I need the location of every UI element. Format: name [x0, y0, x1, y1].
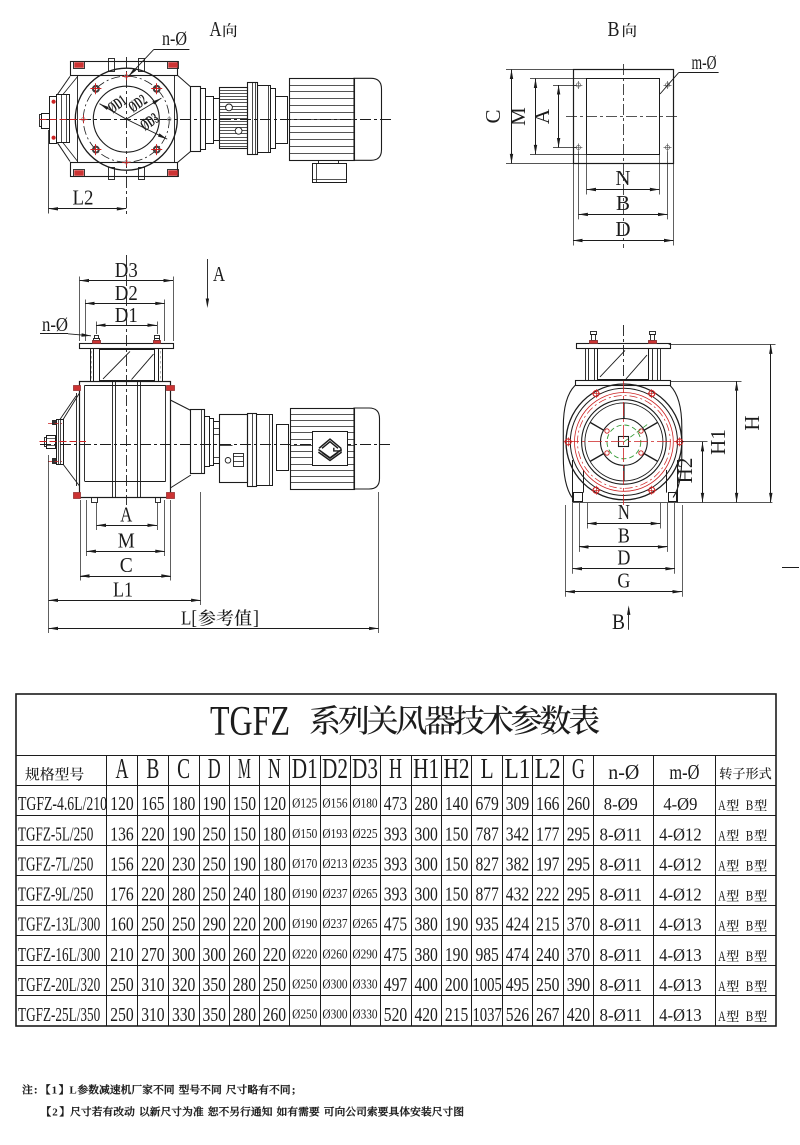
svg-text:8-Ø11: 8-Ø11: [600, 915, 643, 935]
svg-text:TGFZ-4.6L/210: TGFZ-4.6L/210: [18, 793, 107, 815]
svg-text:260: 260: [263, 1004, 286, 1026]
svg-text:L2: L2: [535, 753, 561, 785]
svg-text:220: 220: [141, 853, 164, 875]
svg-text:4-Ø13: 4-Ø13: [659, 945, 702, 965]
svg-text:B: B: [746, 889, 754, 905]
svg-text::: :: [34, 1083, 38, 1097]
svg-text:Ø193: Ø193: [322, 827, 347, 842]
svg-text:877: 877: [475, 884, 498, 906]
svg-text:240: 240: [536, 944, 559, 966]
svg-text:A: A: [718, 889, 726, 905]
svg-text:390: 390: [567, 974, 590, 996]
svg-text:295: 295: [567, 884, 590, 906]
svg-text:D3: D3: [115, 258, 138, 282]
svg-text:Ø180: Ø180: [352, 797, 377, 812]
svg-text:120: 120: [110, 793, 133, 815]
svg-text:180: 180: [263, 853, 286, 875]
svg-text:309: 309: [506, 793, 529, 815]
svg-text:140: 140: [445, 793, 468, 815]
svg-text:B: B: [746, 828, 754, 844]
svg-text:176: 176: [110, 884, 133, 906]
svg-text:B: B: [612, 609, 625, 634]
svg-text:250: 250: [203, 853, 226, 875]
svg-text:222: 222: [536, 884, 559, 906]
svg-text:B: B: [746, 858, 754, 874]
svg-text:B: B: [746, 949, 754, 965]
svg-text:474: 474: [506, 944, 529, 966]
svg-text:300: 300: [414, 823, 437, 845]
svg-text:270: 270: [141, 944, 164, 966]
svg-text:4-Ø12: 4-Ø12: [659, 854, 702, 874]
svg-text:220: 220: [263, 944, 286, 966]
svg-text:H1: H1: [413, 753, 439, 785]
svg-text:H: H: [389, 753, 402, 785]
svg-text:A: A: [530, 108, 554, 124]
svg-text:B: B: [746, 919, 754, 935]
svg-text:935: 935: [475, 914, 498, 936]
svg-text:393: 393: [384, 884, 407, 906]
svg-text:497: 497: [384, 974, 407, 996]
svg-text:2: 2: [52, 1107, 58, 1119]
svg-text:180: 180: [263, 884, 286, 906]
svg-text:D: D: [617, 546, 630, 570]
svg-text:G: G: [617, 569, 630, 593]
svg-text:D: D: [208, 753, 221, 785]
svg-text:N: N: [618, 500, 630, 524]
svg-text:220: 220: [233, 914, 256, 936]
svg-text:400: 400: [414, 974, 437, 996]
svg-text:m-Ø: m-Ø: [669, 760, 699, 784]
svg-text:424: 424: [506, 914, 529, 936]
svg-text:TGFZ-7L/250: TGFZ-7L/250: [18, 853, 93, 875]
svg-text:Ø235: Ø235: [352, 857, 377, 872]
svg-text:985: 985: [475, 944, 498, 966]
svg-text:H: H: [740, 415, 764, 430]
svg-text:267: 267: [536, 1004, 559, 1026]
svg-text:250: 250: [203, 823, 226, 845]
svg-text:250: 250: [536, 974, 559, 996]
svg-text:A: A: [718, 1009, 726, 1025]
svg-text:Ø290: Ø290: [352, 947, 377, 962]
svg-text:B: B: [618, 524, 630, 548]
svg-text:380: 380: [414, 914, 437, 936]
svg-text:380: 380: [414, 944, 437, 966]
svg-text:350: 350: [203, 974, 226, 996]
svg-text:475: 475: [384, 914, 407, 936]
svg-text:310: 310: [141, 1004, 164, 1026]
svg-text:370: 370: [567, 914, 590, 936]
svg-text:473: 473: [384, 793, 407, 815]
svg-text:C: C: [120, 553, 133, 577]
svg-text:A: A: [718, 858, 726, 874]
svg-text:250: 250: [110, 974, 133, 996]
svg-text:A: A: [116, 753, 129, 785]
svg-text:1005: 1005: [472, 974, 501, 996]
svg-text:280: 280: [172, 884, 195, 906]
svg-text:A: A: [718, 828, 726, 844]
svg-text:250: 250: [172, 914, 195, 936]
svg-text:n-Ø: n-Ø: [42, 314, 68, 336]
svg-text:190: 190: [203, 793, 226, 815]
svg-text:150: 150: [445, 884, 468, 906]
svg-text:L1: L1: [113, 578, 133, 602]
svg-text:Ø225: Ø225: [352, 827, 377, 842]
svg-text:M: M: [238, 753, 251, 785]
svg-text:295: 295: [567, 853, 590, 875]
svg-text:Ø250: Ø250: [292, 977, 317, 992]
svg-text:Ø237: Ø237: [322, 887, 347, 902]
svg-text:]: ]: [253, 608, 259, 630]
svg-text:215: 215: [536, 914, 559, 936]
svg-text:280: 280: [233, 974, 256, 996]
svg-text:4-Ø13: 4-Ø13: [659, 1005, 702, 1025]
svg-text:165: 165: [141, 793, 164, 815]
svg-text:D1: D1: [115, 303, 138, 327]
svg-text:295: 295: [567, 823, 590, 845]
svg-text:TGFZ: TGFZ: [210, 699, 290, 745]
svg-text:420: 420: [414, 1004, 437, 1026]
svg-text:420: 420: [567, 1004, 590, 1026]
svg-text:D3: D3: [352, 753, 378, 785]
svg-text:475: 475: [384, 944, 407, 966]
svg-text:1: 1: [52, 1085, 58, 1097]
svg-text:Ø250: Ø250: [292, 1008, 317, 1023]
svg-text:Ø190: Ø190: [292, 917, 317, 932]
svg-text:Ø330: Ø330: [352, 977, 377, 992]
svg-text:M: M: [118, 529, 135, 553]
svg-text:150: 150: [445, 823, 468, 845]
svg-text:n-Ø: n-Ø: [608, 760, 639, 784]
svg-text:280: 280: [233, 1004, 256, 1026]
svg-text:A: A: [210, 17, 223, 41]
svg-text:N: N: [268, 753, 281, 785]
svg-text:TGFZ-16L/300: TGFZ-16L/300: [18, 944, 100, 966]
svg-text:D1: D1: [292, 753, 318, 785]
svg-text:TGFZ-25L/350: TGFZ-25L/350: [18, 1004, 100, 1026]
svg-text:8-Ø9: 8-Ø9: [604, 794, 638, 814]
svg-text:B: B: [616, 191, 630, 215]
svg-text:Ø265: Ø265: [352, 887, 377, 902]
svg-text:8-Ø11: 8-Ø11: [600, 885, 643, 905]
svg-text:250: 250: [263, 974, 286, 996]
svg-text:D2: D2: [322, 753, 348, 785]
svg-text:Ø265: Ø265: [352, 917, 377, 932]
svg-text:280: 280: [414, 793, 437, 815]
svg-text:220: 220: [141, 823, 164, 845]
svg-text:G: G: [572, 753, 585, 785]
svg-text:300: 300: [203, 944, 226, 966]
svg-text:160: 160: [110, 914, 133, 936]
svg-text:260: 260: [567, 793, 590, 815]
svg-text:L2: L2: [73, 186, 94, 210]
svg-text:A: A: [120, 503, 133, 527]
svg-text:A: A: [213, 262, 226, 286]
svg-text:250: 250: [203, 884, 226, 906]
svg-text:320: 320: [172, 974, 195, 996]
svg-text:200: 200: [445, 974, 468, 996]
svg-text:B: B: [608, 17, 620, 41]
svg-text:393: 393: [384, 853, 407, 875]
svg-text:136: 136: [110, 823, 133, 845]
svg-text:A: A: [718, 798, 726, 814]
svg-text:330: 330: [172, 1004, 195, 1026]
svg-text:190: 190: [172, 823, 195, 845]
svg-text:Ø190: Ø190: [292, 887, 317, 902]
svg-text:Ø260: Ø260: [322, 947, 347, 962]
svg-text:m-Ø: m-Ø: [692, 52, 717, 74]
svg-text:197: 197: [536, 853, 559, 875]
svg-text:TGFZ-5L/250: TGFZ-5L/250: [18, 823, 93, 845]
svg-text:Ø170: Ø170: [292, 857, 317, 872]
svg-text:Ø300: Ø300: [322, 977, 347, 992]
svg-text:300: 300: [414, 884, 437, 906]
svg-text:240: 240: [233, 884, 256, 906]
svg-text:Ø213: Ø213: [322, 857, 347, 872]
svg-text:342: 342: [506, 823, 529, 845]
svg-text:D: D: [615, 217, 630, 241]
svg-text:B: B: [746, 979, 754, 995]
svg-text:8-Ø11: 8-Ø11: [600, 824, 643, 844]
svg-text:520: 520: [384, 1004, 407, 1026]
svg-text:382: 382: [506, 853, 529, 875]
svg-text:Ø150: Ø150: [292, 827, 317, 842]
svg-text:827: 827: [475, 853, 498, 875]
svg-text:370: 370: [567, 944, 590, 966]
svg-text:;: ;: [292, 1083, 296, 1097]
svg-text:B: B: [146, 753, 159, 785]
svg-text:495: 495: [506, 974, 529, 996]
svg-text:4-Ø12: 4-Ø12: [659, 885, 702, 905]
svg-text:H2: H2: [444, 753, 470, 785]
svg-text:Ø220: Ø220: [292, 947, 317, 962]
svg-text:C: C: [177, 753, 190, 785]
svg-text:A: A: [718, 949, 726, 965]
svg-text:260: 260: [233, 944, 256, 966]
svg-text:190: 190: [233, 853, 256, 875]
svg-text:310: 310: [141, 974, 164, 996]
svg-text:L: L: [69, 1085, 76, 1097]
svg-text:787: 787: [475, 823, 498, 845]
svg-text:156: 156: [110, 853, 133, 875]
svg-text:200: 200: [263, 914, 286, 936]
svg-text:L[: L[: [181, 608, 197, 630]
svg-text:H1: H1: [706, 429, 730, 455]
svg-text:190: 190: [445, 944, 468, 966]
svg-text:679: 679: [475, 793, 498, 815]
svg-text:TGFZ-9L/250: TGFZ-9L/250: [18, 884, 93, 906]
svg-text:4-Ø12: 4-Ø12: [659, 824, 702, 844]
svg-text:300: 300: [172, 944, 195, 966]
svg-text:D2: D2: [115, 281, 138, 305]
svg-text:n-Ø: n-Ø: [162, 28, 187, 50]
svg-text:177: 177: [536, 823, 559, 845]
svg-text:250: 250: [141, 914, 164, 936]
svg-text:290: 290: [203, 914, 226, 936]
svg-text:C: C: [481, 109, 505, 123]
svg-text:Ø237: Ø237: [322, 917, 347, 932]
svg-text:TGFZ-13L/300: TGFZ-13L/300: [18, 914, 100, 936]
svg-text:190: 190: [445, 914, 468, 936]
svg-text:150: 150: [233, 823, 256, 845]
svg-text:8-Ø11: 8-Ø11: [600, 1005, 643, 1025]
svg-text:A: A: [718, 979, 726, 995]
svg-text:Ø330: Ø330: [352, 1008, 377, 1023]
svg-text:250: 250: [110, 1004, 133, 1026]
svg-text:215: 215: [445, 1004, 468, 1026]
svg-text:A: A: [718, 919, 726, 935]
svg-text:180: 180: [263, 823, 286, 845]
svg-text:TGFZ-20L/320: TGFZ-20L/320: [18, 974, 100, 996]
svg-text:350: 350: [203, 1004, 226, 1026]
svg-text:120: 120: [263, 793, 286, 815]
svg-text:Ø300: Ø300: [322, 1008, 347, 1023]
svg-text:1037: 1037: [472, 1004, 501, 1026]
svg-text:8-Ø11: 8-Ø11: [600, 975, 643, 995]
svg-text:H2: H2: [673, 458, 697, 484]
svg-text:526: 526: [506, 1004, 529, 1026]
svg-text:4-Ø13: 4-Ø13: [659, 975, 702, 995]
svg-text:B: B: [746, 1009, 754, 1025]
svg-text:4-Ø9: 4-Ø9: [663, 794, 697, 814]
svg-text:8-Ø11: 8-Ø11: [600, 854, 643, 874]
svg-text:8-Ø11: 8-Ø11: [600, 945, 643, 965]
svg-text:Ø156: Ø156: [322, 797, 347, 812]
svg-text:M: M: [506, 107, 530, 126]
svg-text:150: 150: [233, 793, 256, 815]
svg-text:393: 393: [384, 823, 407, 845]
svg-text:Ø125: Ø125: [292, 797, 317, 812]
svg-text:210: 210: [110, 944, 133, 966]
svg-text:L: L: [481, 753, 494, 785]
svg-text:230: 230: [172, 853, 195, 875]
svg-text:N: N: [615, 166, 630, 190]
svg-text:220: 220: [141, 884, 164, 906]
svg-text:150: 150: [445, 853, 468, 875]
svg-text:L1: L1: [505, 753, 531, 785]
svg-text:166: 166: [536, 793, 559, 815]
svg-text:432: 432: [506, 884, 529, 906]
svg-text:B: B: [746, 798, 754, 814]
svg-text:180: 180: [172, 793, 195, 815]
svg-text:300: 300: [414, 853, 437, 875]
svg-text:4-Ø13: 4-Ø13: [659, 915, 702, 935]
